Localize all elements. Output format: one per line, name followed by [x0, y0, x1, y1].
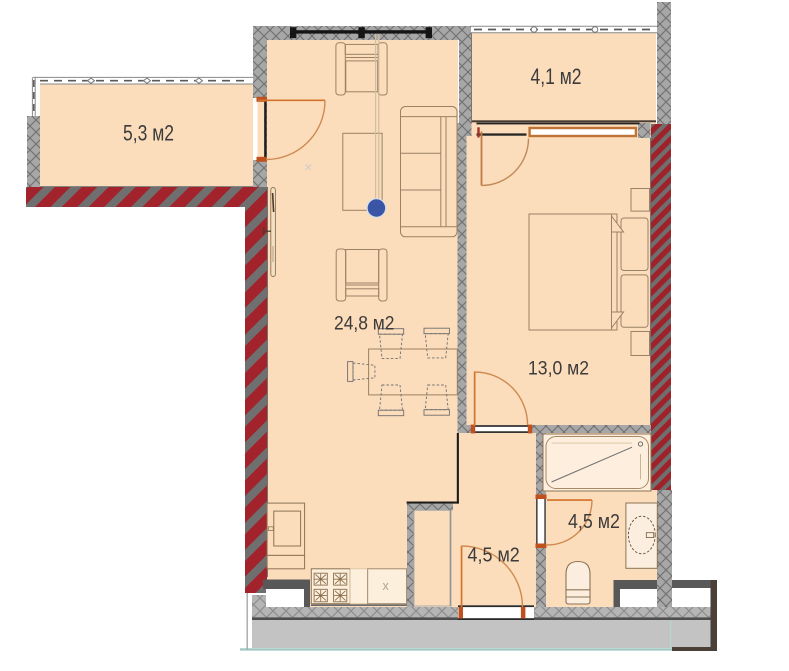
svg-text:24,8 м2: 24,8 м2 [334, 314, 395, 335]
svg-text:4,5 м2: 4,5 м2 [468, 544, 520, 567]
svg-text:4,5 м2: 4,5 м2 [568, 510, 620, 533]
svg-text:4,1 м2: 4,1 м2 [531, 64, 582, 89]
svg-text:х: х [383, 579, 390, 593]
svg-text:5,3 м2: 5,3 м2 [123, 121, 174, 146]
svg-text:13,0 м2: 13,0 м2 [528, 359, 589, 380]
